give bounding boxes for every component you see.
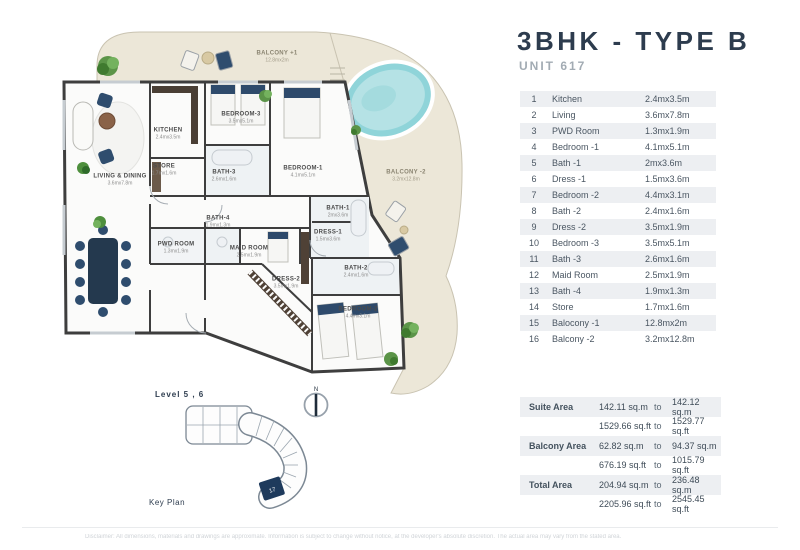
level-label: Level 5 , 6 xyxy=(155,390,204,399)
area-value-to: 142.12 sq.m xyxy=(672,397,721,417)
room-table-row: 7 Bedroom -2 4.4mx3.1m xyxy=(520,187,716,203)
area-range-word: to xyxy=(654,460,672,470)
room-size: 2.4mx1.6m xyxy=(645,206,716,216)
room-table-row: 12 Maid Room 2.5mx1.9m xyxy=(520,267,716,283)
floor-plan-page: { "title": "3BHK - TYPE B", "subtitle": … xyxy=(0,0,800,550)
area-label: Balcony Area xyxy=(520,441,599,451)
rooms-table: 1 Kitchen 2.4mx3.5m 2 Living 3.6mx7.8m 3… xyxy=(520,91,716,347)
room-table-row: 8 Bath -2 2.4mx1.6m xyxy=(520,203,716,219)
room-size: 3.5mx1.9m xyxy=(645,222,716,232)
room-name: Balocony -1 xyxy=(548,318,645,328)
area-value-from: 676.19 sq.ft xyxy=(599,460,654,470)
room-size: 3.5mx5.1m xyxy=(645,238,716,248)
room-name: Balcony -2 xyxy=(548,334,645,344)
room-table-row: 5 Bath -1 2mx3.6m xyxy=(520,155,716,171)
room-size: 2mx3.6m xyxy=(645,158,716,168)
area-value-to: 94.37 sq.m xyxy=(672,441,721,451)
area-value-to: 1015.79 sq.ft xyxy=(672,455,721,475)
room-number: 2 xyxy=(520,110,548,120)
room-name: Dress -2 xyxy=(548,222,645,232)
area-summary-table: Suite Area 142.11 sq.m to 142.12 sq.m 15… xyxy=(520,397,721,514)
area-table-row: Total Area 204.94 sq.m to 236.48 sq.m xyxy=(520,475,721,495)
room-size: 2.5mx1.9m xyxy=(645,270,716,280)
room-number: 3 xyxy=(520,126,548,136)
area-table-row: Suite Area 142.11 sq.m to 142.12 sq.m xyxy=(520,397,721,417)
room-size: 12.8mx2m xyxy=(645,318,716,328)
keyplan-caption: Key Plan xyxy=(149,498,185,507)
room-size: 3.6mx7.8m xyxy=(645,110,716,120)
room-number: 4 xyxy=(520,142,548,152)
room-name: Bedroom -2 xyxy=(548,190,645,200)
area-value-to: 1529.77 sq.ft xyxy=(672,416,721,436)
room-number: 11 xyxy=(520,254,548,264)
area-value-to: 236.48 sq.m xyxy=(672,475,721,495)
room-number: 16 xyxy=(520,334,548,344)
room-number: 8 xyxy=(520,206,548,216)
room-size: 2.4mx3.5m xyxy=(645,94,716,104)
room-name: Bedroom -1 xyxy=(548,142,645,152)
area-label: Total Area xyxy=(520,480,599,490)
room-size: 1.5mx3.6m xyxy=(645,174,716,184)
room-table-row: 3 PWD Room 1.3mx1.9m xyxy=(520,123,716,139)
room-size: 3.2mx12.8m xyxy=(645,334,716,344)
page-title: 3BHK - TYPE B xyxy=(517,26,750,57)
room-number: 5 xyxy=(520,158,548,168)
floor-plan-drawing: 17 N xyxy=(0,0,520,550)
room-size: 2.6mx1.6m xyxy=(645,254,716,264)
room-number: 6 xyxy=(520,174,548,184)
room-number: 14 xyxy=(520,302,548,312)
room-number: 7 xyxy=(520,190,548,200)
area-value-from: 204.94 sq.m xyxy=(599,480,654,490)
room-name: Bath -2 xyxy=(548,206,645,216)
area-range-word: to xyxy=(654,402,672,412)
room-table-row: 10 Bedroom -3 3.5mx5.1m xyxy=(520,235,716,251)
room-number: 15 xyxy=(520,318,548,328)
disclaimer-text: Disclaimer: All dimensions, materials an… xyxy=(85,534,775,540)
room-size: 4.1mx5.1m xyxy=(645,142,716,152)
area-value-from: 142.11 sq.m xyxy=(599,402,654,412)
area-range-word: to xyxy=(654,499,672,509)
room-number: 1 xyxy=(520,94,548,104)
area-table-row: 1529.66 sq.ft to 1529.77 sq.ft xyxy=(520,417,721,437)
room-name: Kitchen xyxy=(548,94,645,104)
area-value-to: 2545.45 sq.ft xyxy=(672,494,721,514)
area-range-word: to xyxy=(654,421,672,431)
area-range-word: to xyxy=(654,441,672,451)
compass-north-label: N xyxy=(314,387,318,393)
area-label: Suite Area xyxy=(520,402,599,412)
room-table-row: 11 Bath -3 2.6mx1.6m xyxy=(520,251,716,267)
room-table-row: 4 Bedroom -1 4.1mx5.1m xyxy=(520,139,716,155)
room-table-row: 1 Kitchen 2.4mx3.5m xyxy=(520,91,716,107)
area-table-row: Balcony Area 62.82 sq.m to 94.37 sq.m xyxy=(520,436,721,456)
room-name: PWD Room xyxy=(548,126,645,136)
room-number: 10 xyxy=(520,238,548,248)
room-size: 1.7mx1.6m xyxy=(645,302,716,312)
room-name: Bath -4 xyxy=(548,286,645,296)
area-range-word: to xyxy=(654,480,672,490)
room-table-row: 15 Balocony -1 12.8mx2m xyxy=(520,315,716,331)
key-plan: 17 xyxy=(186,406,298,501)
area-value-from: 2205.96 sq.ft xyxy=(599,499,654,509)
room-table-row: 16 Balcony -2 3.2mx12.8m xyxy=(520,331,716,347)
room-size: 4.4mx3.1m xyxy=(645,190,716,200)
room-number: 9 xyxy=(520,222,548,232)
room-table-row: 13 Bath -4 1.9mx1.3m xyxy=(520,283,716,299)
room-number: 12 xyxy=(520,270,548,280)
room-table-row: 2 Living 3.6mx7.8m xyxy=(520,107,716,123)
room-size: 1.3mx1.9m xyxy=(645,126,716,136)
room-name: Dress -1 xyxy=(548,174,645,184)
room-name: Maid Room xyxy=(548,270,645,280)
room-size: 1.9mx1.3m xyxy=(645,286,716,296)
bottom-divider xyxy=(22,527,778,528)
room-name: Living xyxy=(548,110,645,120)
room-number: 13 xyxy=(520,286,548,296)
north-compass-icon: N xyxy=(305,387,328,417)
unit-number: UNIT 617 xyxy=(519,59,586,73)
room-name: Bath -1 xyxy=(548,158,645,168)
room-table-row: 14 Store 1.7mx1.6m xyxy=(520,299,716,315)
room-name: Bedroom -3 xyxy=(548,238,645,248)
room-table-row: 9 Dress -2 3.5mx1.9m xyxy=(520,219,716,235)
area-table-row: 2205.96 sq.ft to 2545.45 sq.ft xyxy=(520,495,721,515)
area-table-row: 676.19 sq.ft to 1015.79 sq.ft xyxy=(520,456,721,476)
area-value-from: 62.82 sq.m xyxy=(599,441,654,451)
room-name: Bath -3 xyxy=(548,254,645,264)
room-name: Store xyxy=(548,302,645,312)
room-table-row: 6 Dress -1 1.5mx3.6m xyxy=(520,171,716,187)
area-value-from: 1529.66 sq.ft xyxy=(599,421,654,431)
